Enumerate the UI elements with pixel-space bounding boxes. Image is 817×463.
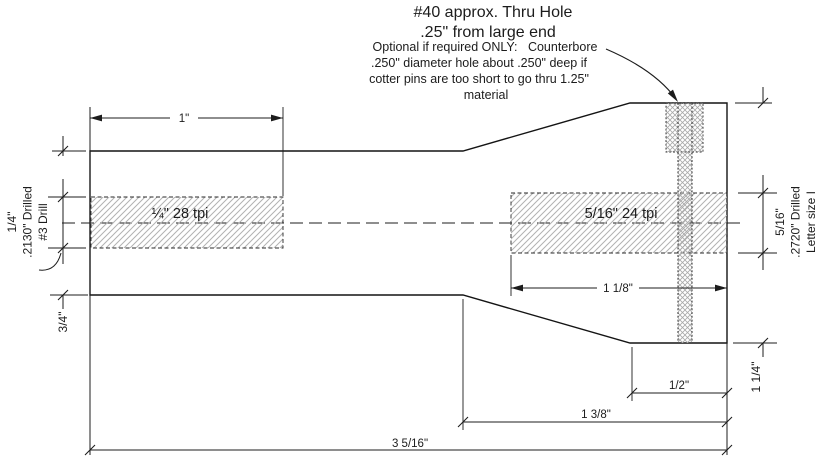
right-side-dimensions: 5/16" .2720" Drilled Letter size I 1 1/4…	[733, 87, 817, 392]
note-body-line1: Optional if required ONLY: Counterbore	[373, 40, 598, 54]
large-thread-label: 5/16" 24 tpi	[585, 206, 658, 222]
left-hole-drill-size-label: .2130" Drilled	[21, 186, 35, 258]
dim-arrow-left	[90, 115, 102, 122]
dim-large-flat-length: 1/2"	[627, 347, 732, 401]
right-hole-drill-label: Letter size I	[804, 191, 817, 253]
engineering-drawing: #40 approx. Thru Hole .25" from large en…	[0, 0, 817, 463]
large-thread-hatch	[511, 193, 727, 253]
left-hole-diameter-label: 1/4"	[5, 212, 19, 233]
dim-large-section-length-label: 1 3/8"	[581, 409, 611, 421]
small-end-thread-region: ¼" 28 tpi	[91, 197, 283, 248]
dim-small-thread-length-label: 1"	[179, 113, 189, 125]
counterbore-leader-line	[606, 49, 676, 99]
right-hole-diameter-label: 5/16"	[773, 208, 787, 236]
small-thread-hatch	[91, 197, 283, 248]
small-thread-label: ¼" 28 tpi	[152, 206, 209, 222]
note-title-line1: #40 approx. Thru Hole	[414, 4, 573, 21]
large-end-thread-region: 5/16" 24 tpi	[511, 193, 727, 253]
note-body-line4: material	[464, 88, 508, 102]
left-hole-leader-curve	[39, 253, 61, 270]
thru-hole-hatch	[678, 152, 692, 343]
dim-overall-length-label: 3 5/16"	[392, 438, 428, 450]
right-hole-drill-size-label: .2720" Drilled	[789, 186, 803, 258]
thru-hole-note: #40 approx. Thru Hole .25" from large en…	[369, 4, 678, 102]
dim-large-end-diameter-label: 1 1/4"	[749, 362, 763, 393]
dim-arrow-right	[715, 285, 727, 292]
left-hole-drill-label: #3 Drill	[36, 203, 50, 240]
counterbore-hatch	[666, 103, 703, 152]
note-body-line3: cotter pins are too short to go thru 1.2…	[369, 72, 589, 86]
dim-overall-length: 3 5/16"	[85, 438, 732, 455]
dim-large-thread-length: 1 1/8"	[511, 255, 727, 296]
dim-large-flat-length-label: 1/2"	[669, 380, 689, 392]
dim-small-end-diameter-label: 3/4"	[56, 312, 70, 333]
dim-arrow-left	[511, 285, 523, 292]
note-body-line2: .250" diameter hole about .250" deep if	[371, 56, 588, 70]
left-side-dimensions: 1/4" .2130" Drilled #3 Drill 3/4"	[5, 136, 88, 332]
note-title-line2: .25" from large end	[420, 24, 556, 41]
dim-large-thread-length-label: 1 1/8"	[603, 283, 633, 295]
dim-arrow-right	[271, 115, 283, 122]
drawing-canvas: #40 approx. Thru Hole .25" from large en…	[0, 0, 817, 463]
